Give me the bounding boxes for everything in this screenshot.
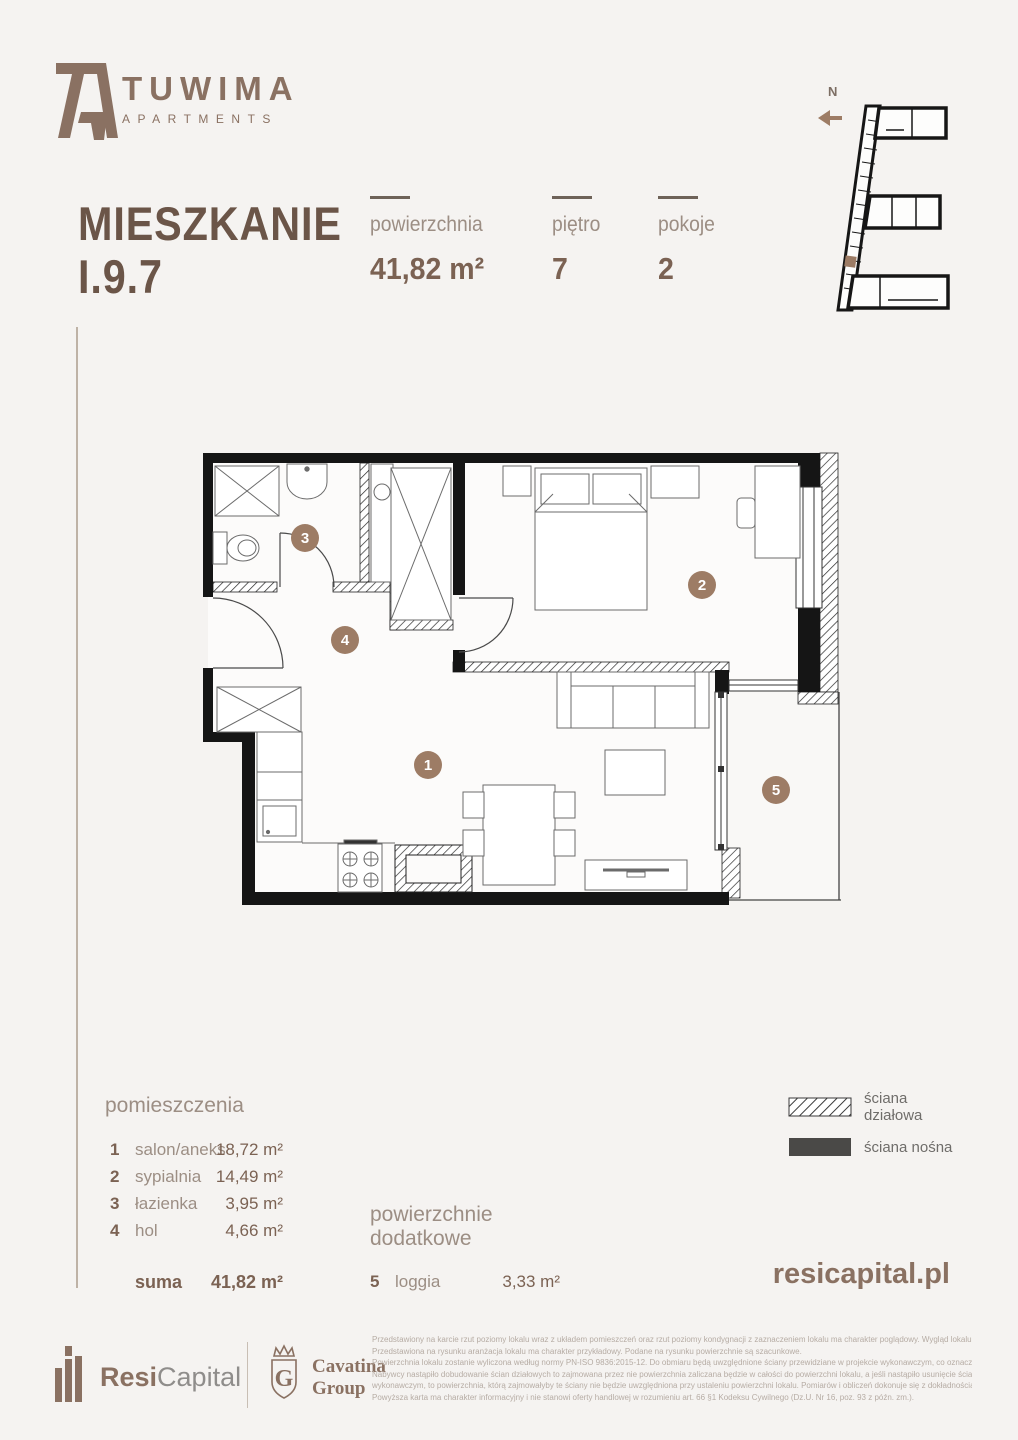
resicapital-wordmark: ResiCapital xyxy=(100,1362,241,1393)
compass-arrow-icon xyxy=(818,110,842,126)
title-line1: MIESZKANIE xyxy=(78,200,342,247)
room-row: 4 hol 4,66 m² xyxy=(105,1221,283,1248)
sum-value: 41,82 m² xyxy=(211,1272,283,1293)
stat-floor: piętro 7 xyxy=(552,196,605,287)
disclaimer: Przedstawiony na karcie rzut poziomy lok… xyxy=(372,1334,972,1404)
room-name: sypialnia xyxy=(135,1167,201,1187)
rooms-table: 1 salon/aneks 18,72 m² 2 sypialnia 14,49… xyxy=(105,1140,283,1248)
highlighted-unit-marker xyxy=(844,255,856,267)
disclaimer-line: Przedstawiona na rysunku aranżacja lokal… xyxy=(372,1346,972,1358)
rooms-header: pomieszczenia xyxy=(105,1094,285,1118)
room-badge-5: 5 xyxy=(762,776,790,804)
disclaimer-line: wykonawczym, to powierzchnia, którą zajm… xyxy=(372,1380,972,1392)
partition-wall-label: ściana działowa xyxy=(864,1090,968,1124)
additional-header-line2: dodatkowe xyxy=(370,1227,493,1251)
room-row: 3 łazienka 3,95 m² xyxy=(105,1194,283,1221)
stat-rooms-label: pokoje xyxy=(658,213,715,237)
svg-text:3: 3 xyxy=(301,530,309,547)
additional-header-line1: powierzchnie xyxy=(370,1203,493,1227)
sum-row: suma 41,82 m² xyxy=(135,1272,283,1293)
additional-row: 5 loggia 3,33 m² xyxy=(365,1272,560,1299)
stat-dash xyxy=(552,196,592,199)
svg-text:2: 2 xyxy=(698,577,706,594)
tuwima-logo-mark xyxy=(55,62,121,142)
additional-no: 5 xyxy=(370,1272,379,1292)
stat-area-value: 41,82 m² xyxy=(370,251,484,287)
resi-text: Resi xyxy=(100,1362,157,1392)
room-row: 1 salon/aneks 18,72 m² xyxy=(105,1140,283,1167)
room-name: hol xyxy=(135,1221,158,1241)
website-link[interactable]: resicapital.pl xyxy=(773,1258,950,1291)
stat-area-label: powierzchnia xyxy=(370,213,484,237)
bearing-wall-swatch xyxy=(788,1137,852,1157)
rooms-section: pomieszczenia xyxy=(105,1094,285,1118)
room-area: 18,72 m² xyxy=(216,1140,283,1160)
stat-area: powierzchnia 41,82 m² xyxy=(370,196,494,287)
room-no: 3 xyxy=(110,1194,119,1214)
site-plan: N xyxy=(808,78,958,313)
disclaimer-line: Przedstawiony na karcie rzut poziomy lok… xyxy=(372,1334,972,1346)
building-outline xyxy=(838,106,948,310)
title-line2: I.9.7 xyxy=(78,253,342,300)
compass-north-label: N xyxy=(828,84,837,99)
footer-divider xyxy=(247,1342,248,1408)
disclaimer-line: Powyższa karta ma charakter informacyjny… xyxy=(372,1392,972,1404)
brand-name: TUWIMA xyxy=(122,70,300,108)
additional-section: powierzchnie dodatkowe xyxy=(370,1203,493,1251)
stat-dash xyxy=(370,196,410,199)
room-row: 2 sypialnia 14,49 m² xyxy=(105,1167,283,1194)
decorative-rule xyxy=(76,327,78,1288)
legend-bearing: ściana nośna xyxy=(788,1137,968,1157)
svg-text:G: G xyxy=(275,1366,294,1392)
legend-partition: ściana działowa xyxy=(788,1090,968,1124)
page-title: MIESZKANIE I.9.7 xyxy=(78,200,378,300)
room-area: 3,95 m² xyxy=(225,1194,283,1214)
stat-floor-label: piętro xyxy=(552,213,600,237)
room-no: 1 xyxy=(110,1140,119,1160)
svg-text:4: 4 xyxy=(341,632,350,649)
sum-label: suma xyxy=(135,1272,182,1292)
disclaimer-line: Nabywcy nastąpiło dobudowanie ścian dzia… xyxy=(372,1369,972,1381)
brand-block: TUWIMA APARTMENTS xyxy=(122,70,300,126)
stat-rooms-value: 2 xyxy=(658,251,715,287)
bearing-wall-label: ściana nośna xyxy=(864,1139,952,1156)
room-area: 14,49 m² xyxy=(216,1167,283,1187)
ta-monogram-icon xyxy=(55,62,121,142)
brand-subtitle: APARTMENTS xyxy=(122,112,300,126)
room-badge-4: 4 xyxy=(331,626,359,654)
room-badge-1: 1 xyxy=(414,751,442,779)
disclaimer-line: Powierzchnia lokalu zostanie wyliczona w… xyxy=(372,1357,972,1369)
room-badge-2: 2 xyxy=(688,571,716,599)
room-no: 2 xyxy=(110,1167,119,1187)
additional-area: 3,33 m² xyxy=(502,1272,560,1292)
wall-legend: ściana działowa ściana nośna xyxy=(788,1090,968,1170)
svg-text:1: 1 xyxy=(424,757,432,774)
additional-name: loggia xyxy=(395,1272,440,1292)
room-badge-3: 3 xyxy=(291,524,319,552)
stat-dash xyxy=(658,196,698,199)
room-name: łazienka xyxy=(135,1194,197,1214)
room-name: salon/aneks xyxy=(135,1140,226,1160)
capital-text: Capital xyxy=(157,1362,241,1392)
svg-text:5: 5 xyxy=(772,782,780,799)
stat-rooms: pokoje 2 xyxy=(658,196,720,287)
partition-wall-swatch xyxy=(788,1097,852,1117)
room-area: 4,66 m² xyxy=(225,1221,283,1241)
room-no: 4 xyxy=(110,1221,119,1241)
resicapital-logo-icon xyxy=(55,1346,91,1402)
floor-plan: 1 2 3 4 5 xyxy=(195,440,850,935)
cavatina-logo-icon: G xyxy=(262,1342,306,1406)
stat-floor-value: 7 xyxy=(552,251,600,287)
